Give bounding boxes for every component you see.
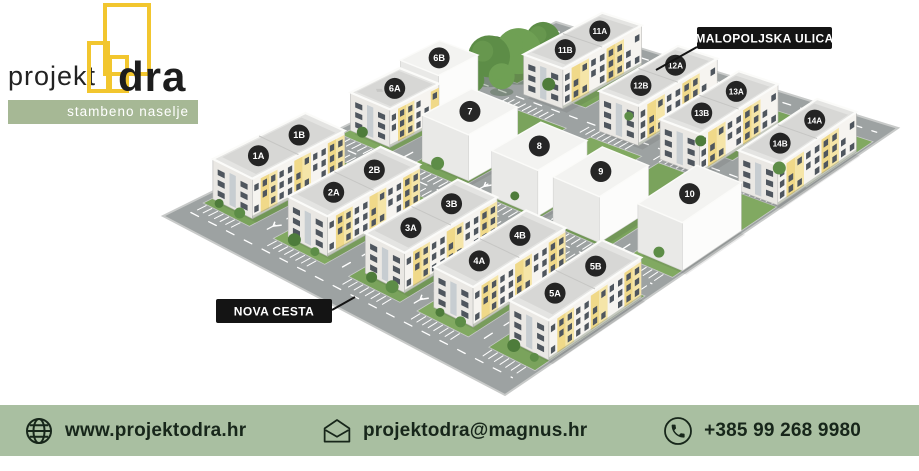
- svg-text:MALOPOLJSKA ULICA: MALOPOLJSKA ULICA: [695, 31, 833, 45]
- bush: [773, 162, 786, 175]
- building-marker-9: 9: [590, 161, 611, 182]
- building-marker-3A: 3A: [400, 217, 421, 238]
- svg-text:7: 7: [467, 107, 472, 117]
- building-marker-2B: 2B: [364, 159, 385, 180]
- svg-text:6B: 6B: [433, 53, 445, 63]
- bush: [530, 353, 539, 362]
- building-marker-14B: 14B: [770, 133, 791, 154]
- phone-icon: [663, 416, 693, 446]
- email-text: projektodra@magnus.hr: [363, 420, 587, 442]
- bush: [435, 308, 444, 317]
- bush: [455, 316, 466, 327]
- logo-brand-prefix: projekt: [8, 63, 96, 90]
- bush: [431, 157, 444, 170]
- svg-text:1A: 1A: [253, 151, 265, 161]
- svg-text:13B: 13B: [694, 109, 709, 118]
- bush: [542, 78, 555, 91]
- bush: [288, 233, 301, 246]
- building-marker-5A: 5A: [545, 283, 566, 304]
- building-marker-13A: 13A: [726, 81, 747, 102]
- svg-text:3A: 3A: [405, 223, 417, 233]
- svg-text:8: 8: [537, 141, 542, 151]
- bush: [357, 127, 368, 138]
- envelope-icon: [322, 416, 352, 446]
- building-marker-5B: 5B: [585, 256, 606, 277]
- real-estate-flyer: 1A1B2A2B3A3B4A4B5A5B6A6B7891011B11A12B12…: [0, 0, 919, 471]
- svg-text:14B: 14B: [773, 139, 788, 148]
- logo-building-mark-icon: [87, 41, 110, 93]
- logo-tagline: stambeno naselje: [8, 100, 198, 124]
- building-marker-11A: 11A: [589, 20, 610, 41]
- svg-text:13A: 13A: [729, 88, 744, 97]
- svg-text:14A: 14A: [807, 116, 822, 125]
- building-marker-14A: 14A: [804, 110, 825, 131]
- bush: [653, 247, 664, 258]
- bush: [695, 135, 706, 146]
- svg-text:9: 9: [598, 167, 603, 177]
- svg-text:NOVA CESTA: NOVA CESTA: [234, 304, 314, 318]
- svg-text:4A: 4A: [473, 256, 485, 266]
- contact-phone: +385 99 268 9980: [663, 416, 861, 446]
- building-marker-6B: 6B: [429, 47, 450, 68]
- logo-tagline-banner: stambeno naselje: [8, 100, 198, 124]
- building-marker-13B: 13B: [691, 102, 712, 123]
- bush: [507, 339, 520, 352]
- building-marker-8: 8: [529, 135, 550, 156]
- bush: [510, 191, 519, 200]
- phone-text: +385 99 268 9980: [704, 420, 861, 442]
- tree: [489, 63, 515, 96]
- website-text: www.projektodra.hr: [65, 420, 246, 442]
- building-marker-4B: 4B: [509, 225, 530, 246]
- contact-email: projektodra@magnus.hr: [322, 416, 587, 446]
- logo-brand-suffix: dra: [118, 56, 186, 98]
- building-marker-2A: 2A: [323, 182, 344, 203]
- svg-text:6A: 6A: [389, 84, 401, 94]
- logo: projekt dra stambeno naselje: [0, 0, 215, 132]
- building-marker-1B: 1B: [289, 125, 310, 146]
- svg-text:11B: 11B: [558, 46, 573, 55]
- building-marker-6A: 6A: [384, 78, 405, 99]
- svg-text:10: 10: [684, 189, 694, 199]
- contact-website: www.projektodra.hr: [24, 416, 246, 446]
- bush: [215, 199, 224, 208]
- svg-text:11A: 11A: [593, 27, 608, 36]
- building-marker-1A: 1A: [248, 145, 269, 166]
- bush: [310, 247, 319, 256]
- svg-text:4B: 4B: [514, 231, 526, 241]
- bush: [624, 112, 633, 121]
- building-marker-4A: 4A: [469, 250, 490, 271]
- bush: [366, 272, 377, 283]
- svg-text:1B: 1B: [293, 130, 305, 140]
- bush: [234, 207, 245, 218]
- building-marker-12A: 12A: [665, 55, 686, 76]
- building-marker-11B: 11B: [555, 39, 576, 60]
- building-marker-10: 10: [679, 183, 700, 204]
- building-marker-3B: 3B: [441, 193, 462, 214]
- globe-icon: [24, 416, 54, 446]
- svg-text:5A: 5A: [549, 288, 561, 298]
- svg-text:2A: 2A: [328, 187, 340, 197]
- svg-text:3B: 3B: [446, 199, 458, 209]
- svg-text:2B: 2B: [368, 165, 380, 175]
- footer-contact-bar: www.projektodra.hr projektodra@magnus.hr…: [0, 405, 919, 456]
- building-marker-7: 7: [459, 101, 480, 122]
- svg-text:5B: 5B: [590, 261, 602, 271]
- bush: [386, 280, 399, 293]
- svg-text:12B: 12B: [633, 82, 648, 91]
- building-marker-12B: 12B: [630, 75, 651, 96]
